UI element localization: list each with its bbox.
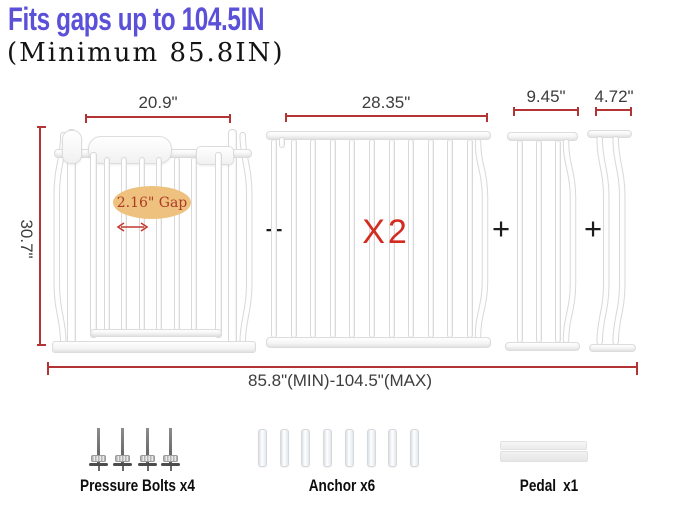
anchor-icon bbox=[301, 429, 310, 467]
extension-medium-wavy-bar bbox=[561, 140, 577, 342]
total-range-dimension-line bbox=[48, 366, 637, 368]
vertical-bar bbox=[139, 157, 145, 332]
extension-large-mount-tab bbox=[279, 137, 285, 148]
pedal-icon-bottom bbox=[500, 451, 588, 462]
extension-small-wavy-bar-1 bbox=[595, 137, 610, 344]
extension-large-dimension-line bbox=[286, 115, 487, 117]
vertical-bar bbox=[104, 157, 110, 332]
pressure-bolt-icon bbox=[88, 428, 108, 473]
headline: Fits gaps up to 104.5IN bbox=[8, 1, 264, 38]
total-range-label: 85.8"(MIN)-104.5"(MAX) bbox=[240, 371, 440, 391]
pressure-bolts-label: Pressure Bolts x4 bbox=[80, 476, 192, 496]
pressure-bolt-icon bbox=[112, 428, 132, 473]
vertical-bar bbox=[447, 139, 453, 338]
extension-large-top-rail bbox=[266, 131, 491, 140]
anchor-icon bbox=[258, 429, 267, 467]
vertical-bar bbox=[428, 139, 434, 338]
vertical-bar bbox=[174, 157, 180, 332]
bar-gap-callout: 2.16" Gap bbox=[113, 186, 191, 219]
gap-arrow-icon bbox=[116, 221, 149, 233]
gate-width-dimension-line bbox=[86, 116, 230, 118]
extension-medium-base bbox=[505, 342, 580, 351]
anchor-icon bbox=[323, 429, 332, 467]
gate-hinge-cap bbox=[62, 130, 82, 164]
pedal-label: Pedal x1 bbox=[501, 476, 597, 496]
vertical-bar bbox=[310, 139, 316, 338]
gate-dimension-diagram: Fits gaps up to 104.5IN (Minimum 85.8IN)… bbox=[0, 0, 679, 509]
anchor-icon bbox=[280, 429, 289, 467]
gate-door-bottom-rail bbox=[90, 329, 222, 337]
extension-small-base bbox=[589, 344, 636, 352]
vertical-bar bbox=[271, 139, 277, 338]
extension-large-bottom-rail bbox=[266, 337, 491, 348]
extension-large-width-label: 28.35" bbox=[336, 93, 436, 113]
vertical-bar bbox=[536, 140, 542, 343]
pressure-bolt-icon bbox=[137, 428, 157, 473]
extension-small-width-label: 4.72" bbox=[591, 87, 637, 107]
vertical-bar bbox=[191, 157, 197, 332]
extension-medium-dimension-line bbox=[514, 109, 578, 111]
pedal-icon-top bbox=[500, 441, 587, 450]
vertical-bar bbox=[517, 140, 523, 343]
extension-large-wavy-bar bbox=[473, 140, 489, 338]
anchor-icon bbox=[345, 429, 354, 467]
gate-height-dimension-line bbox=[39, 127, 41, 345]
extension-small-dimension-line bbox=[596, 109, 631, 111]
extension-medium-width-label: 9.45" bbox=[511, 87, 581, 107]
gate-door-left-stile bbox=[90, 152, 97, 338]
gate-right-hook-bar bbox=[238, 133, 253, 345]
vertical-bar bbox=[291, 139, 297, 338]
pressure-bolt-icon bbox=[160, 428, 180, 473]
gate-left-hook-bar bbox=[53, 133, 68, 345]
extension-large-quantity: X2 bbox=[352, 213, 420, 252]
anchor-icon bbox=[367, 429, 376, 467]
vertical-bar bbox=[156, 157, 162, 332]
anchors-label: Anchor x6 bbox=[294, 476, 390, 496]
vertical-bar bbox=[330, 139, 336, 338]
gate-width-label: 20.9" bbox=[120, 93, 196, 113]
subheadline: (Minimum 85.8IN) bbox=[7, 38, 285, 68]
gate-door-right-stile bbox=[215, 152, 222, 338]
anchor-icon bbox=[388, 429, 397, 467]
gate-base-plate bbox=[52, 341, 256, 353]
vertical-bar bbox=[121, 157, 127, 332]
anchor-icon bbox=[410, 429, 419, 467]
extension-small-wavy-bar-2 bbox=[611, 137, 626, 344]
gate-height-label: 30.7" bbox=[16, 217, 36, 261]
plus-sign-2: + bbox=[492, 211, 510, 247]
